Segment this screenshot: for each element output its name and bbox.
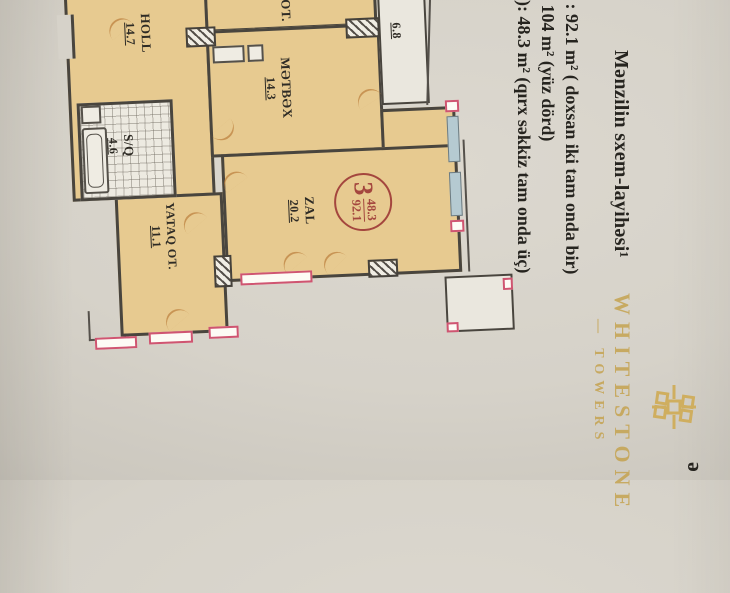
window-balcony-1 (446, 322, 458, 333)
column-metbex-top (345, 17, 380, 38)
area-line-total: i : 92.1 m² ( doxsan iki tam onda bir) (561, 0, 582, 274)
watermark: WHITESTONE — TOWERS (590, 293, 702, 593)
window-yataq-1 (95, 336, 137, 350)
glass-zal-right-2 (449, 172, 463, 216)
label-room-ot: OT. (277, 0, 294, 22)
room-metbex (206, 23, 385, 157)
outer-line-right (463, 140, 471, 272)
column-zal-bottom (368, 259, 399, 278)
balcony-outer-edge (426, 0, 433, 105)
balcony-top (374, 0, 430, 105)
whitestone-knot-logo-icon (641, 379, 702, 593)
unit-stamp-content: 3 48.3 92.1 (347, 181, 378, 223)
room-sq-name: S/Q (120, 134, 137, 157)
document-title: Mənzilin sxem-layihəsi¹ (609, 50, 632, 258)
room-metbex-name: MƏTBƏX (277, 57, 296, 119)
balcony-area: 6.8 (388, 22, 404, 39)
unit-area-total: 92.1 (348, 198, 363, 222)
area-line-gross: : 104 m² (yüz dörd) (537, 0, 558, 141)
label-room-yataq: YATAQ OT. 11.1 (147, 202, 180, 271)
room-yataq-name: YATAQ OT. (162, 202, 180, 270)
kitchen-counter (212, 45, 245, 63)
unit-number: 3 (349, 181, 377, 196)
room-holl-area: 14.7 (122, 14, 139, 54)
unit-areas: 48.3 92.1 (348, 198, 379, 223)
watermark-brand: WHITESTONE (609, 293, 635, 593)
washbasin (81, 105, 102, 124)
window-yataq-3 (208, 326, 238, 339)
label-room-zal: ZAL 20.2 (286, 196, 318, 226)
column-holl-metbex (185, 26, 216, 47)
window-zal-right-2 (450, 220, 465, 233)
photographed-floorplan-document: { "document": { "title": "Mənzilin sxem-… (0, 0, 730, 480)
area-line-living: ə): 48.3 m² (qırx səkkiz tam onda üç) (513, 0, 534, 273)
window-zal-right-1 (445, 100, 460, 113)
label-room-metbex: MƏTBƏX 14.3 (262, 57, 296, 120)
room-ot-name: OT. (277, 0, 294, 22)
floorplan: OT. HOLL 14.7 S/Q 4.6 YATAQ OT. 11.1 MƏT… (43, 0, 532, 407)
window-balcony-2 (503, 278, 514, 290)
room-sq-area: 4.6 (105, 135, 121, 158)
entry-notch (57, 14, 76, 59)
label-room-sq: S/Q 4.6 (105, 134, 137, 158)
watermark-sub: — TOWERS (590, 319, 606, 593)
glass-zal-right-1 (446, 116, 460, 162)
window-yataq-2 (149, 331, 193, 345)
room-holl-name: HOLL (137, 13, 155, 53)
unit-area-living: 48.3 (362, 198, 378, 223)
bathtub-inner (86, 133, 104, 188)
label-balcony-area: 6.8 (388, 22, 404, 39)
room-zal-name: ZAL (301, 196, 318, 225)
column-yataq-wall (213, 255, 232, 288)
window-zal-bottom (240, 270, 312, 285)
label-room-holl: HOLL 14.7 (122, 13, 155, 54)
room-zal-area: 20.2 (286, 197, 302, 226)
